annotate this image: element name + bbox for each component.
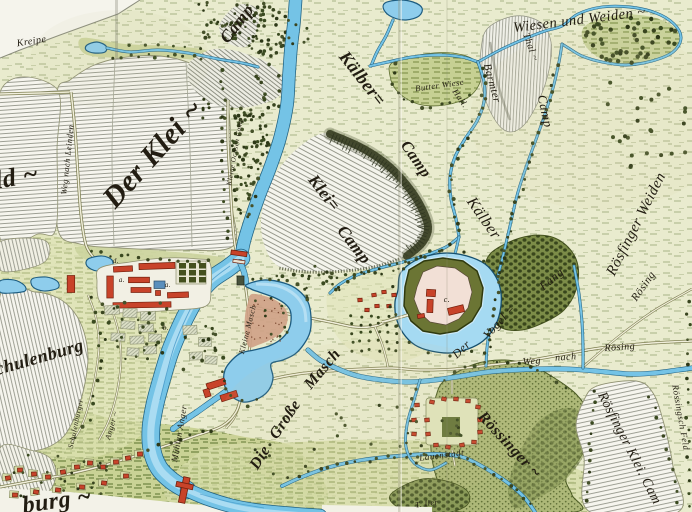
svg-text:b.: b. — [163, 324, 169, 332]
svg-text:Weg: Weg — [522, 355, 541, 367]
svg-text:nach: nach — [555, 351, 577, 363]
svg-text:a.: a. — [119, 276, 125, 284]
svg-text:d.: d. — [113, 257, 119, 265]
svg-text:a.: a. — [165, 281, 171, 289]
svg-text:Rösing: Rösing — [603, 341, 635, 354]
